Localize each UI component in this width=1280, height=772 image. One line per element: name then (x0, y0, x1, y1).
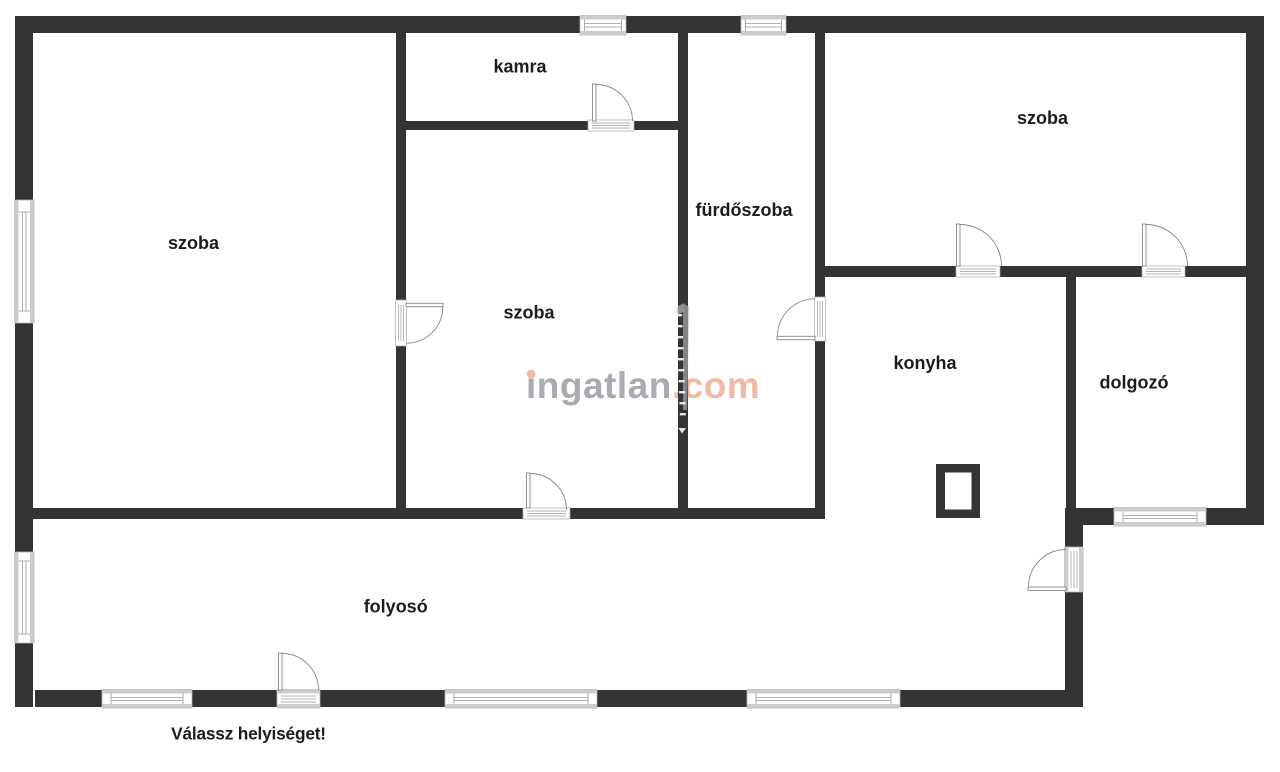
svg-text:fürdőszoba: fürdőszoba (696, 200, 794, 220)
svg-text:szoba: szoba (503, 303, 555, 323)
svg-text:ingatlan.com: ingatlan.com (526, 365, 760, 406)
svg-text:folyosó: folyosó (364, 597, 428, 617)
svg-text:szoba: szoba (1017, 108, 1069, 128)
svg-text:szoba: szoba (168, 233, 220, 253)
svg-text:kamra: kamra (493, 57, 547, 77)
svg-text:konyha: konyha (893, 353, 957, 373)
svg-text:dolgozó: dolgozó (1100, 373, 1169, 393)
svg-text:Válassz helyiséget!: Válassz helyiséget! (171, 724, 326, 744)
